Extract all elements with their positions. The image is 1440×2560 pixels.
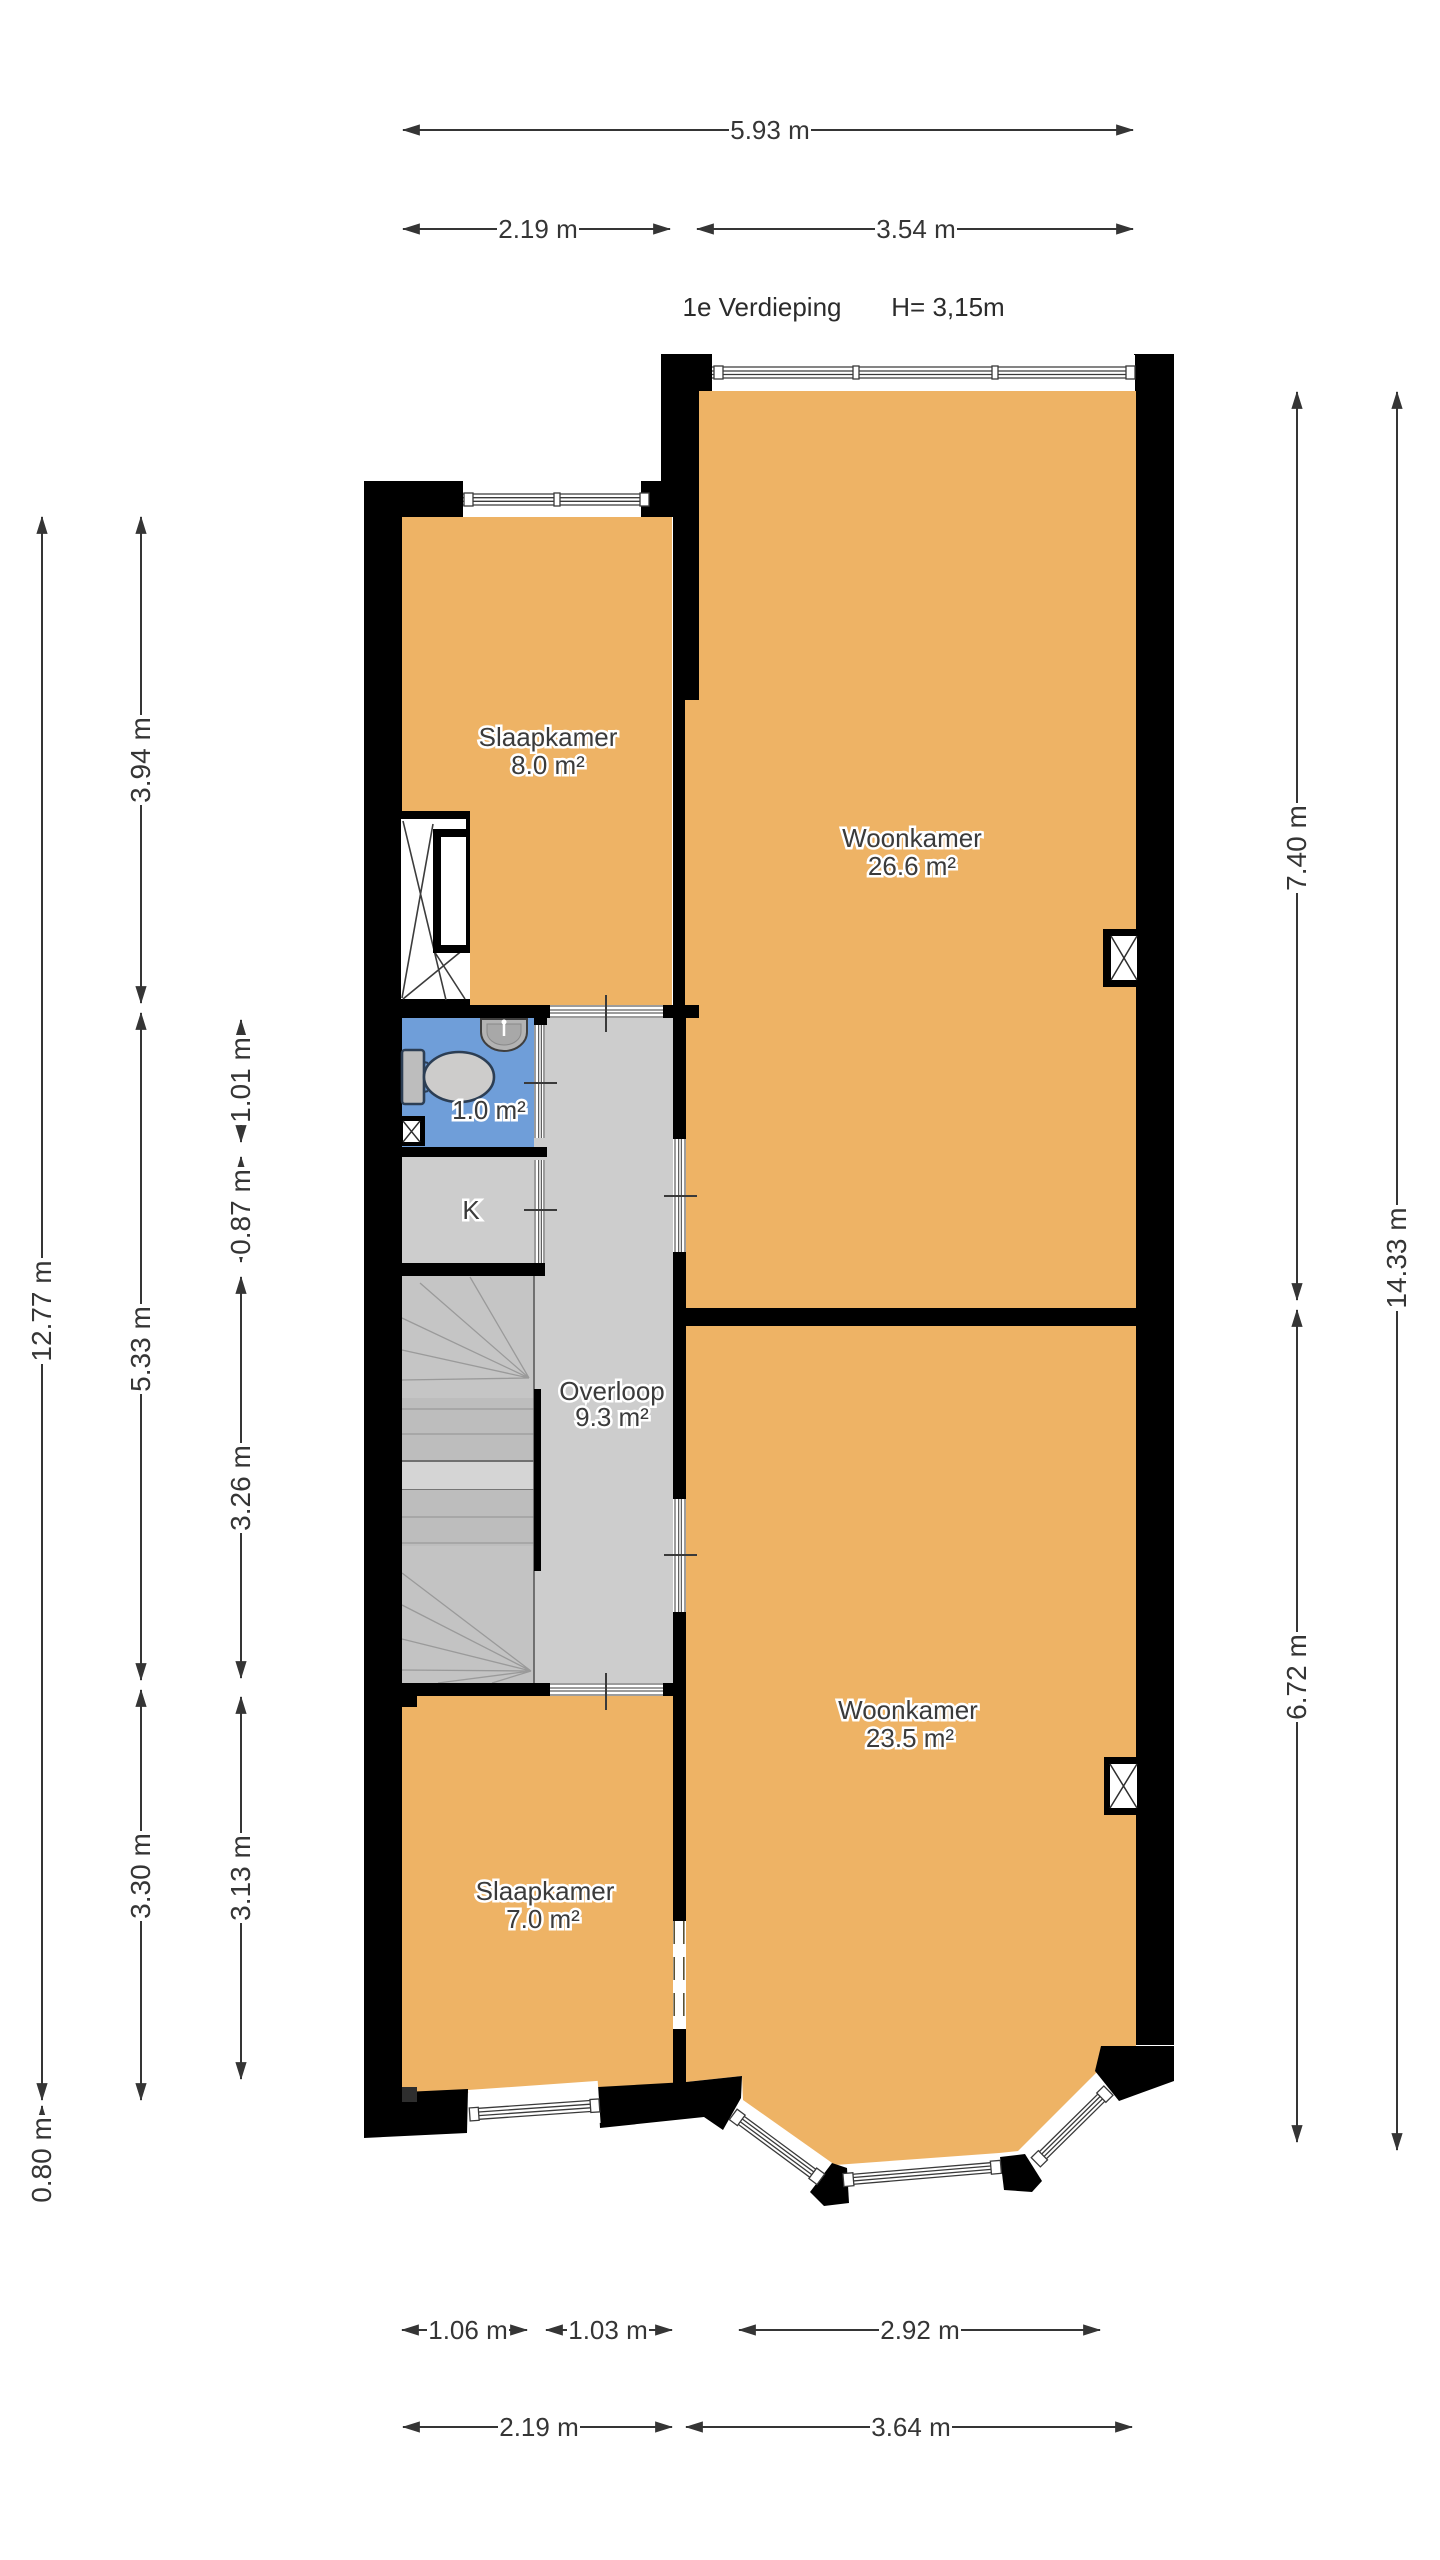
svg-text:Slaapkamer: Slaapkamer (479, 722, 618, 752)
svg-text:12.77 m: 12.77 m (26, 1260, 57, 1361)
svg-text:0.80 m: 0.80 m (26, 2117, 57, 2203)
svg-text:1.03 m: 1.03 m (568, 2315, 648, 2345)
svg-text:7.0 m²: 7.0 m² (506, 1904, 580, 1934)
svg-text:2.19 m: 2.19 m (498, 214, 578, 244)
svg-text:3.64 m: 3.64 m (871, 2412, 951, 2442)
svg-text:26.6 m²: 26.6 m² (868, 851, 956, 881)
svg-text:3.13 m: 3.13 m (225, 1835, 256, 1921)
svg-text:2.19 m: 2.19 m (499, 2412, 579, 2442)
svg-text:1e Verdieping: 1e Verdieping (682, 292, 841, 322)
svg-text:Woonkamer: Woonkamer (842, 823, 982, 853)
svg-text:23.5 m²: 23.5 m² (866, 1723, 954, 1753)
svg-text:14.33 m: 14.33 m (1381, 1207, 1412, 1308)
svg-text:3.94 m: 3.94 m (125, 717, 156, 803)
svg-text:3.26 m: 3.26 m (225, 1445, 256, 1531)
svg-text:7.40 m: 7.40 m (1281, 805, 1312, 891)
svg-text:1.06 m: 1.06 m (428, 2315, 508, 2345)
svg-text:8.0 m²: 8.0 m² (511, 750, 585, 780)
svg-text:1.0 m²: 1.0 m² (452, 1095, 526, 1125)
svg-text:Slaapkamer: Slaapkamer (476, 1876, 615, 1906)
svg-text:5.33 m: 5.33 m (125, 1306, 156, 1392)
svg-text:6.72 m: 6.72 m (1281, 1634, 1312, 1720)
svg-text:1.01 m: 1.01 m (225, 1037, 256, 1123)
svg-text:2.92 m: 2.92 m (880, 2315, 960, 2345)
svg-text:5.93 m: 5.93 m (730, 115, 810, 145)
svg-text:3.30 m: 3.30 m (125, 1833, 156, 1919)
svg-text:Woonkamer: Woonkamer (838, 1695, 978, 1725)
svg-text:3.54 m: 3.54 m (876, 214, 956, 244)
svg-text:H= 3,15m: H= 3,15m (891, 292, 1004, 322)
svg-text:9.3 m²: 9.3 m² (575, 1402, 649, 1432)
svg-text:0.87 m: 0.87 m (225, 1169, 256, 1255)
svg-text:K: K (462, 1195, 480, 1225)
